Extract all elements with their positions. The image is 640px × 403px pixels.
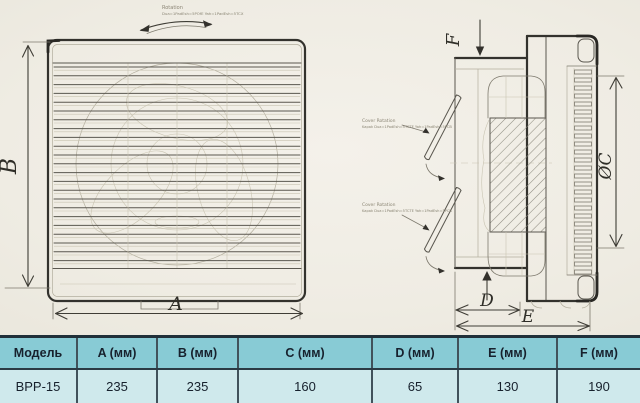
rotation-annotation: Rotation Dua=1PadEsh=5POfE Yah=1PadEsh=5… [140,5,244,34]
column-header-model: Модель [0,337,77,370]
cell-b: 235 [157,369,238,403]
cell-c: 160 [238,369,372,403]
side-view: Cover Rotation Kapak Dua=1PadEsh=5TCTE Y… [362,20,624,331]
fan-technical-drawing-svg: Rotation Dua=1PadEsh=5POfE Yah=1PadEsh=5… [0,0,640,335]
cover-note-top-line2: Kapak Dua=1PadEsh=5TCTE Yah=1PadEsh=5PCB [362,125,452,129]
cell-a: 235 [77,369,157,403]
dimension-label-e: E [521,307,535,327]
dimension-label-oc: ØC [596,153,616,181]
technical-drawing-paper: Rotation Dua=1PadEsh=5POfE Yah=1PadEsh=5… [0,0,640,335]
cover-note-bottom-line1: Cover Rotation [362,202,396,208]
column-header-b: B (мм) [157,337,238,370]
cell-d: 65 [372,369,458,403]
dimension-a: A [53,293,303,319]
dimension-f: F [443,20,492,300]
front-view: Rotation Dua=1PadEsh=5POfE Yah=1PadEsh=5… [0,5,305,319]
table-header-row: Модель A (мм) B (мм) C (мм) D (мм) E (мм… [0,337,640,370]
dimension-b: B [0,42,50,288]
motor-section [482,76,546,276]
column-header-a: A (мм) [77,337,157,370]
column-header-e: E (мм) [458,337,557,370]
cell-model: BPP-15 [0,369,77,403]
dimension-label-a: A [167,293,183,315]
product-spec-sheet: Rotation Dua=1PadEsh=5POfE Yah=1PadEsh=5… [0,0,640,403]
dimension-label-f: F [443,32,464,47]
cover-note-bottom-line2: Kapak Dua=1PadEsh=5TCTE Yah=1PadEsh=5PCB [362,209,452,213]
column-header-c: C (мм) [238,337,372,370]
dimension-label-d: D [479,291,494,311]
cell-f: 190 [557,369,640,403]
shutter-flap-bottom [425,188,462,274]
cover-note-top-line1: Cover Rotation [362,118,396,124]
table-row-bpp15: BPP-15 235 235 160 65 130 190 [0,369,640,403]
cover-rotation-annotation-bottom: Cover Rotation Kapak Dua=1PadEsh=5TCTE Y… [362,202,452,231]
grille-edge-ribs [574,68,592,274]
cell-e: 130 [458,369,557,403]
rotation-note-line2: Dua=1PadEsh=5POfE Yah=1PadEsh=5TCX [162,11,244,16]
front-frame [48,40,305,309]
column-header-d: D (мм) [372,337,458,370]
dimension-e: E [457,303,591,331]
dimension-label-b: B [0,158,22,175]
rotation-arrowhead-left [140,25,150,32]
dimension-table: Модель A (мм) B (мм) C (мм) D (мм) E (мм… [0,335,640,403]
rotation-arc [141,22,211,30]
cover-rotation-annotation-top: Cover Rotation Kapak Dua=1PadEsh=5TCTE Y… [362,118,452,134]
column-header-f: F (мм) [557,337,640,370]
shutter-flap-top [425,95,462,181]
dimension-oc: ØC [596,76,624,248]
